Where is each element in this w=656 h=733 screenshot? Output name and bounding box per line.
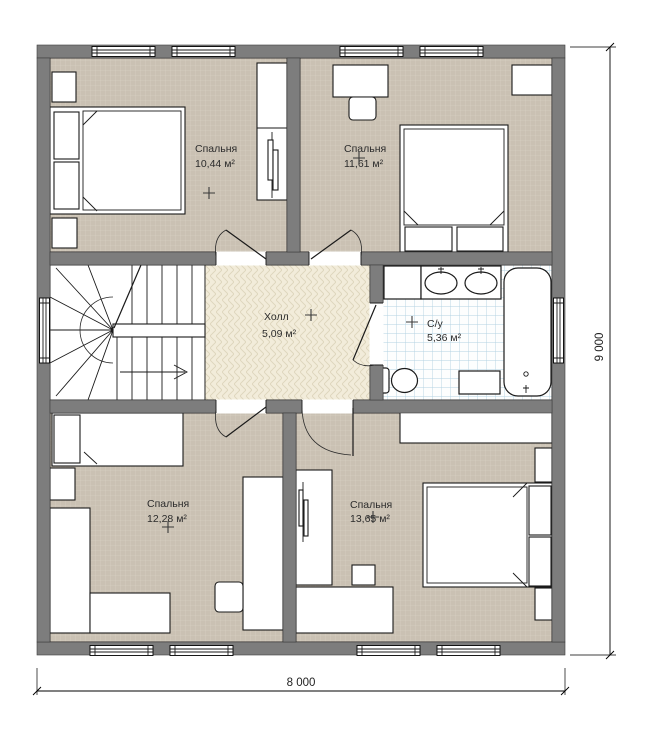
desk — [243, 477, 283, 630]
wardrobe — [90, 593, 170, 633]
nightstand — [535, 588, 552, 620]
stair-landing-rail — [113, 324, 205, 337]
dimension-width: 8 000 — [287, 677, 316, 689]
sink — [465, 272, 497, 294]
window — [40, 298, 50, 363]
wall-separator-bottom — [283, 413, 296, 642]
bath-stool — [459, 371, 500, 394]
pillow — [54, 162, 79, 209]
bathtub — [504, 268, 551, 396]
window — [340, 47, 403, 57]
pillow — [529, 537, 551, 586]
nightstand — [535, 448, 552, 482]
pillow — [54, 112, 79, 159]
room-name: Спальня — [344, 143, 386, 155]
nightstand — [52, 72, 76, 102]
pillow — [405, 227, 452, 251]
nightstand — [52, 218, 77, 248]
room-name: Холл — [264, 311, 289, 323]
stool — [352, 565, 375, 585]
room-area: 5,09 м² — [262, 328, 297, 340]
toilet — [392, 369, 418, 393]
window — [90, 646, 153, 656]
extension-lines — [570, 47, 616, 655]
room-area: 11,61 м² — [344, 158, 384, 170]
bath-cabinet — [384, 266, 421, 299]
pillow — [54, 415, 80, 463]
window — [92, 47, 155, 57]
floor-plan: Спальня 10,44 м² Спальня 11,61 м² Холл 5… — [0, 0, 656, 733]
mirror-icon — [268, 140, 273, 180]
room-name: Спальня — [195, 143, 237, 155]
mirror-icon — [304, 500, 308, 536]
room-area: 13,65 м² — [350, 513, 390, 525]
wardrobe — [50, 508, 90, 633]
mirror-icon — [299, 490, 303, 526]
sink — [425, 272, 457, 294]
window — [420, 47, 483, 57]
desk — [333, 65, 388, 97]
window — [554, 298, 564, 363]
window — [437, 646, 500, 656]
chair — [215, 582, 243, 612]
room-name: Спальня — [147, 498, 189, 510]
room-name: С/у — [427, 318, 444, 330]
mirror-icon — [273, 150, 278, 190]
room-name: Спальня — [350, 499, 392, 511]
dimension-height: 9 000 — [594, 333, 606, 362]
room-area: 12,28 м² — [147, 513, 187, 525]
storage-unit — [296, 587, 393, 633]
room-area: 10,44 м² — [195, 158, 235, 170]
room-area: 5,36 м² — [427, 332, 462, 344]
pillow — [457, 227, 503, 251]
cabinet — [512, 65, 552, 95]
window — [357, 646, 420, 656]
nightstand — [50, 468, 75, 500]
window — [170, 646, 233, 656]
wall-mid-upper — [50, 252, 552, 265]
chair — [349, 97, 376, 120]
wall-separator-top — [287, 58, 300, 252]
dresser — [296, 470, 332, 585]
wall-mid-lower — [50, 400, 552, 413]
window — [172, 47, 235, 57]
pillow — [529, 486, 551, 535]
